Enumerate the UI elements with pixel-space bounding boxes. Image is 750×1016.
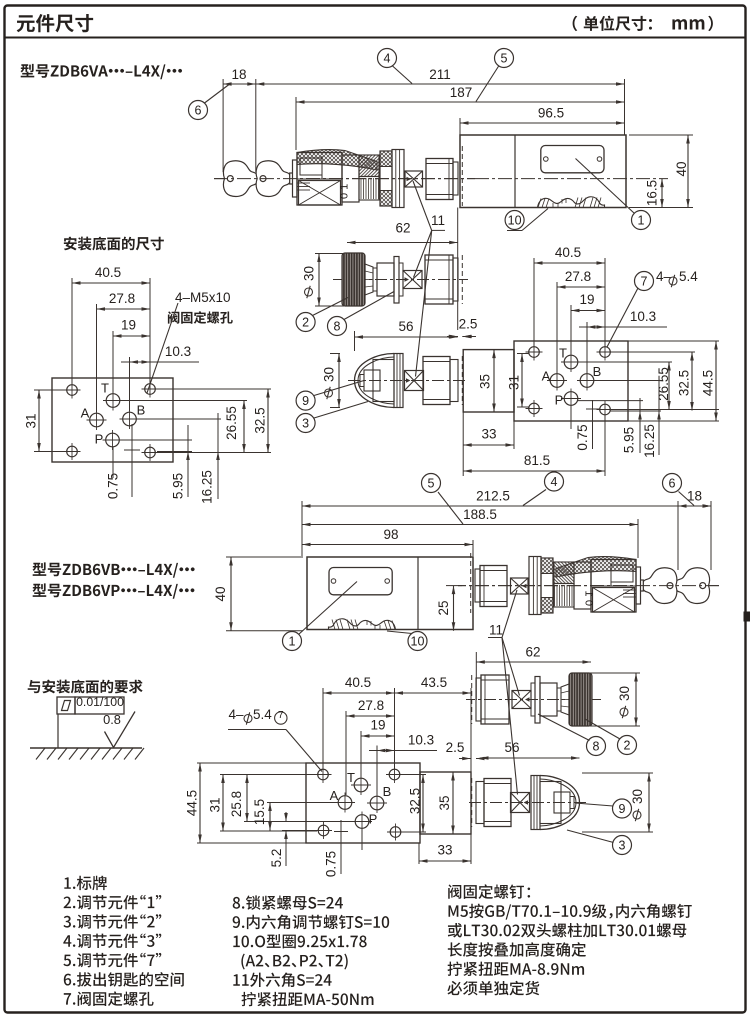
svg-text:19: 19 [370,718,385,733]
svg-text:7: 7 [641,274,648,288]
svg-text:T: T [101,381,109,396]
svg-text:A: A [542,369,551,384]
svg-text:62: 62 [525,645,540,660]
svg-text:7: 7 [278,710,284,721]
svg-text:10.3: 10.3 [165,344,191,359]
svg-text:0.75: 0.75 [575,424,590,450]
svg-text:8: 8 [334,319,341,333]
svg-text:16.25: 16.25 [642,424,657,458]
svg-text:11: 11 [431,213,445,228]
svg-text:4–M5x10: 4–M5x10 [175,290,231,305]
svg-text:43.5: 43.5 [421,675,447,690]
svg-text:211: 211 [429,67,451,82]
svg-text:212.5: 212.5 [476,489,510,504]
svg-text:5.4: 5.4 [679,269,698,284]
svg-text:A: A [330,788,339,803]
svg-text:44.5: 44.5 [700,370,715,396]
svg-text:B: B [137,403,146,418]
svg-text:2.5: 2.5 [446,740,465,755]
svg-text:31: 31 [23,413,38,428]
svg-text:44.5: 44.5 [184,790,199,816]
svg-text:19: 19 [579,292,594,307]
svg-text:33: 33 [437,843,452,858]
svg-text:T: T [347,770,355,785]
svg-text:15.5: 15.5 [252,799,267,825]
svg-text:T: T [559,346,567,361]
svg-text:5.95: 5.95 [621,427,636,453]
svg-text:5.4: 5.4 [253,707,272,722]
svg-text:27.8: 27.8 [109,291,135,306]
svg-text:35: 35 [437,795,452,810]
svg-text:3: 3 [302,416,309,430]
svg-text:40.5: 40.5 [95,265,121,280]
svg-text:10: 10 [411,634,425,648]
svg-text:25: 25 [436,600,451,615]
svg-text:5: 5 [501,51,508,65]
svg-text:32.5: 32.5 [407,788,422,814]
svg-text:81.5: 81.5 [524,453,550,468]
svg-text:0.01/100: 0.01/100 [76,695,124,709]
svg-text:0.8: 0.8 [103,712,121,727]
svg-text:2: 2 [302,315,309,329]
svg-text:P: P [369,812,378,827]
svg-text:1: 1 [638,213,645,227]
svg-text:10: 10 [508,213,522,227]
svg-text:31: 31 [506,375,521,390]
svg-text:19: 19 [121,318,136,333]
svg-text:30: 30 [630,789,645,804]
svg-text:56: 56 [398,319,413,334]
svg-text:40.5: 40.5 [345,675,371,690]
svg-text:10.3: 10.3 [630,309,656,324]
svg-text:40: 40 [213,586,228,601]
svg-text:4: 4 [551,475,558,489]
svg-text:188.5: 188.5 [463,507,497,522]
svg-text:30: 30 [321,367,336,382]
svg-text:40.5: 40.5 [555,245,581,260]
svg-text:A: A [81,406,90,421]
svg-text:96.5: 96.5 [538,106,564,121]
svg-text:B: B [593,364,602,379]
svg-text:30: 30 [301,266,316,281]
svg-text:P: P [555,393,564,408]
svg-text:0 1: 0 1 [339,184,351,199]
svg-text:2.5: 2.5 [459,317,478,332]
svg-text:B: B [383,784,392,799]
svg-text:30: 30 [617,686,632,701]
svg-text:98: 98 [383,527,398,542]
svg-text:33: 33 [481,427,496,442]
svg-text:5: 5 [428,476,435,490]
svg-text:62: 62 [395,221,410,236]
svg-text:32.5: 32.5 [252,407,267,433]
svg-text:9: 9 [302,394,309,408]
svg-text:5.95: 5.95 [170,473,185,499]
svg-text:25.8: 25.8 [229,791,244,817]
svg-text:16.5: 16.5 [644,180,659,206]
svg-text:1: 1 [289,634,296,648]
svg-text:35: 35 [477,374,492,389]
svg-text:5.2: 5.2 [269,849,284,868]
svg-text:26.55: 26.55 [656,367,671,401]
svg-text:4: 4 [384,51,391,65]
svg-text:27.8: 27.8 [565,269,591,284]
svg-text:6: 6 [669,476,676,490]
svg-text:32.5: 32.5 [676,370,691,396]
svg-text:3: 3 [619,838,626,852]
svg-text:11: 11 [489,623,503,638]
svg-text:6: 6 [195,103,202,117]
svg-text:16.25: 16.25 [199,470,214,504]
svg-text:2: 2 [624,738,631,752]
svg-text:10.3: 10.3 [408,733,434,748]
svg-text:9: 9 [619,802,626,816]
svg-text:56: 56 [504,740,519,755]
svg-text:0.75: 0.75 [323,851,338,877]
svg-text:187: 187 [450,85,473,100]
svg-text:26.55: 26.55 [224,406,239,440]
svg-text:18: 18 [231,67,246,82]
svg-text:8: 8 [593,739,600,753]
svg-text:P: P [95,432,104,447]
svg-text:27.8: 27.8 [358,698,384,713]
svg-text:40: 40 [674,161,689,176]
svg-text:31: 31 [207,797,222,812]
svg-text:4–: 4– [229,707,245,722]
